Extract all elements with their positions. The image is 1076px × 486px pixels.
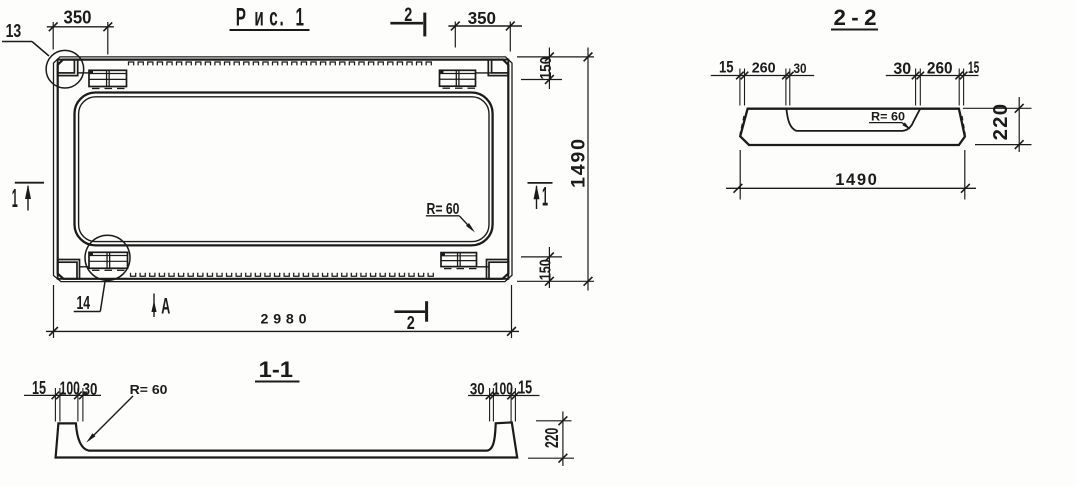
svg-text:R= 60: R= 60 [871,109,905,123]
svg-text:30: 30 [83,379,98,399]
svg-text:1490: 1490 [835,170,877,189]
svg-text:Р: Р [236,4,246,32]
svg-text:R= 60: R= 60 [130,382,168,397]
svg-text:30: 30 [893,60,911,78]
svg-text:2: 2 [407,312,415,333]
svg-text:150: 150 [537,259,555,280]
svg-text:15: 15 [719,58,734,76]
svg-text:220: 220 [542,428,562,448]
svg-text:2-2: 2-2 [834,5,877,30]
svg-text:100: 100 [60,379,80,399]
svg-text:15: 15 [518,377,532,398]
svg-text:1-1: 1-1 [259,357,293,382]
svg-text:.: . [279,4,283,32]
svg-text:1: 1 [542,182,548,212]
svg-text:30: 30 [470,379,485,398]
svg-text:с: с [269,4,277,32]
svg-text:15: 15 [968,59,979,77]
svg-text:13: 13 [6,20,22,41]
svg-text:260: 260 [752,59,776,76]
svg-text:350: 350 [468,8,497,28]
svg-text:100: 100 [493,379,513,399]
svg-text:260: 260 [927,59,953,77]
svg-text:и: и [254,4,263,32]
svg-text:2980: 2980 [261,312,307,328]
svg-text:15: 15 [32,378,46,399]
svg-text:A: A [161,294,170,319]
svg-text:1490: 1490 [568,139,590,188]
svg-text:1: 1 [12,185,18,213]
svg-text:220: 220 [990,104,1012,140]
svg-text:30: 30 [794,60,807,76]
svg-text:350: 350 [64,6,92,27]
svg-text:150: 150 [537,57,555,80]
svg-text:1: 1 [296,4,304,32]
svg-text:2: 2 [404,4,412,26]
